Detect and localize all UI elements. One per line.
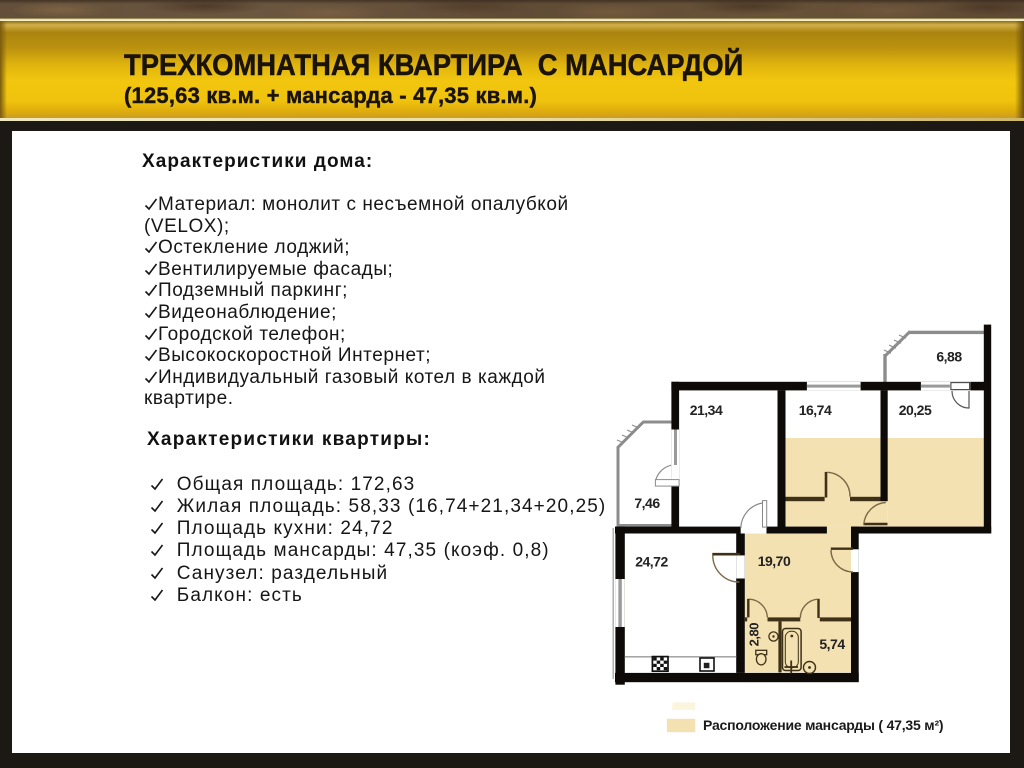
svg-text:21,34: 21,34 (690, 402, 723, 418)
svg-text:20,25: 20,25 (899, 402, 932, 418)
svg-text:6,88: 6,88 (936, 349, 962, 365)
svg-text:5,74: 5,74 (819, 636, 845, 652)
svg-text:16,74: 16,74 (799, 402, 832, 418)
svg-text:Расположение мансарды ( 47,35: Расположение мансарды ( 47,35 м²) (703, 717, 943, 733)
svg-text:24,72: 24,72 (635, 554, 668, 570)
svg-text:2,80: 2,80 (747, 623, 762, 647)
svg-text:7,46: 7,46 (634, 495, 660, 511)
svg-text:19,70: 19,70 (758, 553, 791, 569)
